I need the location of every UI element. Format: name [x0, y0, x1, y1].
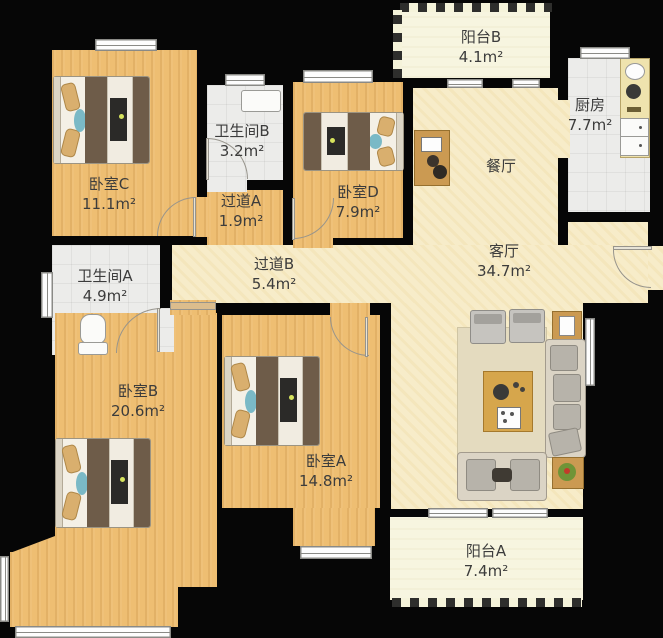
room-name: 客厅	[477, 241, 531, 261]
room-area: 1.9m²	[219, 211, 263, 231]
bedroom-a-bed	[224, 356, 320, 446]
sideboard-picture-frame	[421, 137, 442, 152]
hallway-b-floor	[172, 245, 648, 303]
side-table-lamp	[552, 311, 582, 340]
teapot-icon	[493, 384, 509, 400]
bathroom-a-toilet-tank	[78, 342, 108, 355]
cabinet-door-dot-1	[639, 126, 642, 129]
loveseat-pillow	[492, 468, 512, 482]
bedroom-c-door-opening	[195, 197, 209, 237]
label-bedroom-a: 卧室A 14.8m²	[299, 451, 353, 492]
entry-door-leaf	[613, 246, 652, 250]
bedroom-c-window	[95, 39, 157, 51]
label-balcony-a: 阳台A 7.4m²	[464, 541, 508, 582]
bedroom-c-bed	[53, 76, 150, 164]
room-area: 7.4m²	[464, 561, 508, 581]
bedroom-b-bed	[55, 438, 151, 528]
cabinet-divider	[621, 136, 648, 137]
balcony-b-slider-2	[512, 79, 540, 88]
room-name: 卧室A	[299, 451, 353, 471]
room-name: 卧室B	[111, 381, 165, 401]
cup-icon-1	[513, 382, 519, 388]
room-name: 阳台A	[464, 541, 508, 561]
plant-table	[552, 457, 584, 489]
coffee-table	[483, 371, 533, 432]
balcony-b-window-top	[400, 3, 552, 12]
room-area: 20.6m²	[111, 401, 165, 421]
living-window-right	[585, 318, 595, 386]
room-name: 厨房	[568, 95, 612, 115]
room-name: 卧室D	[336, 182, 380, 202]
bedroom-d-bed	[303, 112, 404, 171]
room-area: 14.8m²	[299, 471, 353, 491]
bedroom-b-window-bottom	[15, 626, 171, 638]
room-name: 卧室C	[82, 174, 136, 194]
room-area: 4.1m²	[459, 47, 503, 67]
bedroom-b-door-leaf	[170, 302, 216, 310]
kitchen-slot	[627, 107, 641, 112]
bedroom-d-door-leaf	[292, 198, 295, 240]
bedroom-d-window	[303, 70, 373, 83]
book-icon	[559, 316, 575, 336]
bedroom-b-window-left	[0, 556, 9, 622]
room-name: 餐厅	[486, 156, 516, 176]
room-area: 3.2m²	[214, 141, 269, 161]
label-bedroom-c: 卧室C 11.1m²	[82, 174, 136, 215]
loveseat	[457, 452, 547, 501]
balcony-a-window-bottom	[392, 598, 582, 607]
room-name: 阳台B	[459, 27, 503, 47]
armchair-1	[470, 310, 506, 344]
label-dining: 餐厅	[486, 156, 516, 176]
bedroom-b-floor-corner	[10, 536, 55, 553]
bedroom-a-door-leaf	[365, 317, 368, 357]
bathroom-a-toilet	[80, 314, 106, 344]
balcony-b-slider-1	[447, 79, 483, 88]
label-bedroom-b: 卧室B 20.6m²	[111, 381, 165, 422]
room-area: 7.9m²	[336, 202, 380, 222]
bedroom-b-floor-ext	[10, 552, 178, 627]
room-area: 34.7m²	[477, 261, 531, 281]
room-name: 卫生间A	[77, 266, 132, 286]
cup-icon-2	[520, 387, 525, 392]
room-area: 7.7m²	[568, 115, 612, 135]
bathroom-b-door-leaf	[206, 138, 209, 180]
kitchen-entry-floor	[568, 222, 648, 245]
bathroom-a-door-leaf	[157, 308, 160, 352]
label-kitchen: 厨房 7.7m²	[568, 95, 612, 136]
kitchen-stove-icon	[626, 84, 641, 99]
sofa-chaise	[545, 339, 586, 458]
room-name: 过道B	[252, 254, 296, 274]
bathroom-b-sink	[241, 90, 281, 112]
label-balcony-b: 阳台B 4.1m²	[459, 27, 503, 68]
plant-icon	[558, 463, 576, 481]
armchair-2	[509, 309, 545, 343]
balcony-b-window-left	[393, 10, 402, 78]
bedroom-a-window	[300, 546, 372, 559]
room-area: 5.4m²	[252, 274, 296, 294]
label-hallway-a: 过道A 1.9m²	[219, 191, 263, 232]
bedroom-c-door-leaf	[193, 197, 196, 237]
cabinet-door-dot-2	[639, 144, 642, 147]
kitchen-cabinet	[620, 118, 649, 156]
kitchen-sink-icon	[625, 63, 645, 80]
label-living: 客厅 34.7m²	[477, 241, 531, 282]
tray-icon	[497, 407, 521, 429]
dining-sideboard	[414, 130, 450, 186]
room-area: 4.9m²	[77, 286, 132, 306]
sideboard-vase-2	[433, 165, 447, 179]
bathroom-b-window	[225, 74, 265, 86]
room-name: 卫生间B	[214, 121, 269, 141]
bedroom-a-door-opening	[330, 303, 370, 317]
balcony-a-slider-1	[428, 508, 488, 518]
floor-plan: 卧室C 11.1m² 卫生间B 3.2m² 过道A 1.9m² 卧室D 7.9m…	[0, 0, 663, 638]
label-hallway-b: 过道B 5.4m²	[252, 254, 296, 295]
room-name: 过道A	[219, 191, 263, 211]
kitchen-window	[580, 47, 630, 59]
bathroom-a-window	[41, 272, 53, 318]
bedroom-a-floor-ext	[293, 508, 375, 546]
balcony-a-slider-2	[492, 508, 548, 518]
label-bathroom-b: 卫生间B 3.2m²	[214, 121, 269, 162]
label-bedroom-d: 卧室D 7.9m²	[336, 182, 380, 223]
room-area: 11.1m²	[82, 194, 136, 214]
label-bathroom-a: 卫生间A 4.9m²	[77, 266, 132, 307]
